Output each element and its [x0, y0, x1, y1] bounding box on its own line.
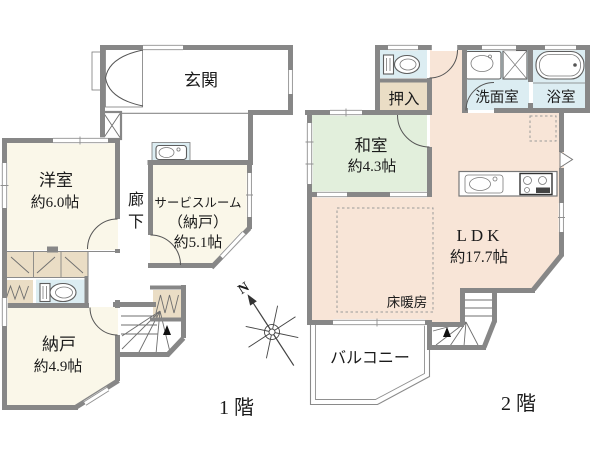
entrance-closet: [92, 50, 143, 108]
floor2-plan: 押入 和室 約4.3帖 洗面室 浴室 LDK 約17.7帖 床暖房 バルコニー …: [305, 44, 590, 415]
compass-rose: N: [216, 267, 317, 381]
shaft-box: [103, 112, 121, 139]
north-label: N: [236, 280, 253, 298]
floor1-plan: 玄関 洋室 約6.0帖 廊 下 サービスルーム （納戸） 約5.1帖 納戸 約4…: [1, 44, 294, 419]
washitsu-label: 和室: [355, 136, 388, 155]
service-room-label-line1: サービスルーム: [154, 196, 241, 210]
stove-icon: [520, 174, 552, 195]
floor1-label: 1階: [219, 396, 259, 419]
oshiire-label: 押入: [388, 90, 419, 108]
washitsu-area: 約4.3帖: [348, 158, 397, 175]
senmenshitsu-sink-icon: [466, 52, 501, 80]
nando-area: 約4.9帖: [34, 358, 83, 375]
youshitsu-area: 約6.0帖: [31, 194, 80, 211]
washing-machine-icon: [503, 51, 527, 80]
toilet1f-icon: [40, 284, 76, 302]
ldk-area: 約17.7帖: [450, 248, 508, 266]
ldk-label: LDK: [457, 226, 504, 245]
nando-label: 納戸: [42, 335, 76, 354]
stairs-2f-up-arrow: [443, 327, 451, 337]
floor-plan-image: 玄関 洋室 約6.0帖 廊 下 サービスルーム （納戸） 約5.1帖 納戸 約4…: [0, 0, 600, 450]
senmenshitsu-label: 洗面室: [475, 89, 519, 106]
floor-heating-label: 床暖房: [387, 295, 428, 310]
yokushitsu-label: 浴室: [547, 89, 576, 106]
rouka-label-char1: 廊: [128, 191, 144, 209]
genkan-label: 玄関: [184, 71, 218, 90]
youshitsu-label: 洋室: [39, 171, 73, 190]
kitchen-counter: [459, 172, 557, 197]
rouka-label-char2: 下: [128, 214, 144, 231]
wall-block: [47, 247, 58, 253]
service-room-area: 約5.1帖: [174, 234, 223, 251]
floor2-label: 2階: [501, 392, 541, 415]
balcony-label: バルコニー: [330, 350, 410, 367]
ldk-east-door-flap: [560, 152, 573, 168]
service-room-label-line2: （納戸）: [168, 214, 228, 231]
floorplan-canvas: 玄関 洋室 約6.0帖 廊 下 サービスルーム （納戸） 約5.1帖 納戸 約4…: [0, 0, 600, 450]
toilet2f-icon: [384, 55, 420, 74]
washbasin1f-icon: [152, 143, 190, 163]
